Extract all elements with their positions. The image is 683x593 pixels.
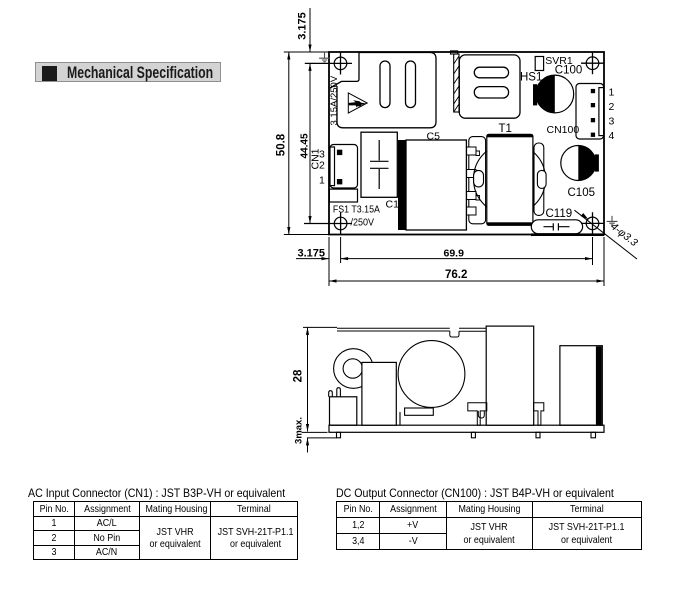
svg-text:1: 1 xyxy=(609,87,615,99)
svg-text:1: 1 xyxy=(319,175,325,187)
svg-text:28: 28 xyxy=(293,369,305,382)
svg-text:4: 4 xyxy=(609,130,615,142)
svg-text:C119: C119 xyxy=(546,208,573,220)
svg-text:3: 3 xyxy=(609,116,615,128)
svg-text:C105: C105 xyxy=(568,187,596,199)
svg-text:C1: C1 xyxy=(386,199,400,211)
svg-text:C5: C5 xyxy=(427,130,441,142)
svg-text:CN100: CN100 xyxy=(547,124,580,136)
svg-text:3.175: 3.175 xyxy=(298,248,326,260)
svg-text:FS1 T3.15A: FS1 T3.15A xyxy=(333,204,380,216)
svg-text:3.175: 3.175 xyxy=(297,12,309,40)
svg-text:3max.: 3max. xyxy=(294,417,305,444)
svg-text:69.9: 69.9 xyxy=(444,248,465,260)
svg-text:2: 2 xyxy=(609,101,615,113)
svg-text:HS1: HS1 xyxy=(520,72,542,84)
svg-text:/250V: /250V xyxy=(351,216,375,228)
svg-text:CN1: CN1 xyxy=(310,148,322,169)
svg-text:3.15A/250V: 3.15A/250V xyxy=(329,75,340,125)
svg-text:4-φ3.3: 4-φ3.3 xyxy=(608,220,640,249)
svg-text:T1: T1 xyxy=(499,123,512,135)
svg-text:50.8: 50.8 xyxy=(276,133,288,156)
svg-text:C100: C100 xyxy=(555,64,583,76)
svg-text:76.2: 76.2 xyxy=(445,269,467,281)
